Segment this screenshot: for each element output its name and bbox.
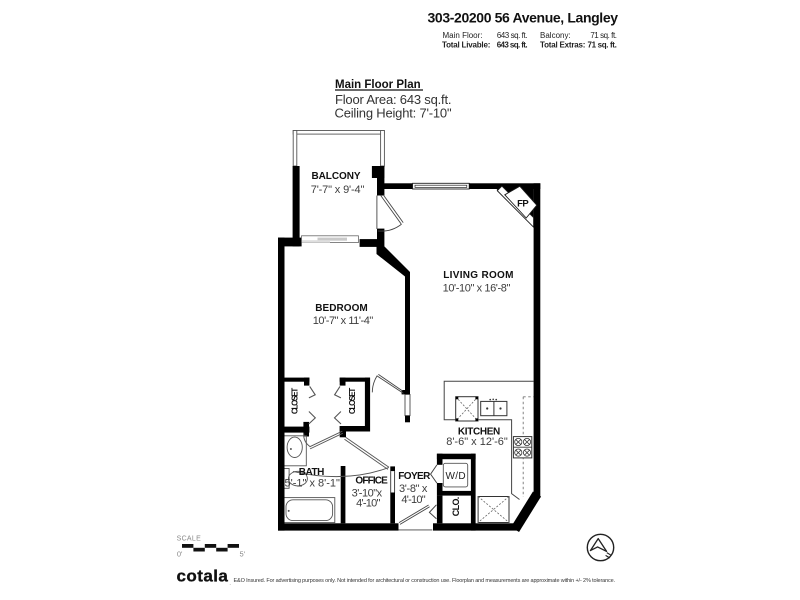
svg-text:CLOSET: CLOSET [348, 388, 357, 415]
svg-text:0': 0' [177, 550, 183, 559]
svg-text:FOYER: FOYER [398, 471, 431, 482]
svg-text:643 sq. ft.: 643 sq. ft. [497, 31, 527, 40]
svg-text:E&O Insured. For advertising p: E&O Insured. For advertising purposes on… [234, 578, 616, 584]
svg-text:cotala: cotala [177, 567, 229, 586]
svg-text:Total Extras:: Total Extras: [540, 41, 585, 50]
svg-text:4'-10": 4'-10" [401, 494, 425, 506]
svg-text:Main Floor Plan: Main Floor Plan [335, 79, 421, 91]
svg-text:7'-7" x 9'-4": 7'-7" x 9'-4" [311, 184, 365, 196]
svg-text:8'-6" x 12'-6": 8'-6" x 12'-6" [446, 436, 508, 448]
svg-text:BALCONY: BALCONY [311, 171, 360, 182]
svg-text:Main Floor:: Main Floor: [443, 31, 483, 40]
svg-text:5'-1" x 8'-1": 5'-1" x 8'-1" [284, 478, 340, 490]
svg-text:CLO.: CLO. [451, 497, 461, 516]
svg-text:5': 5' [240, 550, 246, 559]
svg-text:4'-10": 4'-10" [356, 498, 380, 510]
svg-text:10'-7" x 11'-4": 10'-7" x 11'-4" [313, 315, 374, 327]
svg-text:LIVING ROOM: LIVING ROOM [443, 270, 514, 281]
svg-text:643 sq. ft.: 643 sq. ft. [497, 41, 528, 50]
svg-text:10'-10" x 16'-8": 10'-10" x 16'-8" [443, 283, 511, 295]
svg-text:Balcony:: Balcony: [540, 31, 571, 40]
svg-text:BATH: BATH [299, 467, 324, 478]
svg-text:CLOSET: CLOSET [291, 388, 300, 415]
svg-text:Ceiling Height: 7'-10": Ceiling Height: 7'-10" [335, 105, 452, 120]
svg-text:FP: FP [517, 199, 529, 210]
svg-text:71 sq. ft.: 71 sq. ft. [588, 41, 617, 50]
svg-text:SCALE: SCALE [177, 536, 201, 543]
svg-text:.: . [230, 581, 231, 586]
svg-text:303-20200 56 Avenue, Langley: 303-20200 56 Avenue, Langley [428, 10, 619, 26]
svg-text:OFFICE: OFFICE [355, 475, 388, 486]
svg-text:W/D: W/D [446, 471, 466, 482]
svg-text:71 sq. ft.: 71 sq. ft. [590, 31, 616, 40]
svg-text:Total Livable:: Total Livable: [442, 41, 490, 50]
svg-text:BEDROOM: BEDROOM [315, 303, 368, 314]
